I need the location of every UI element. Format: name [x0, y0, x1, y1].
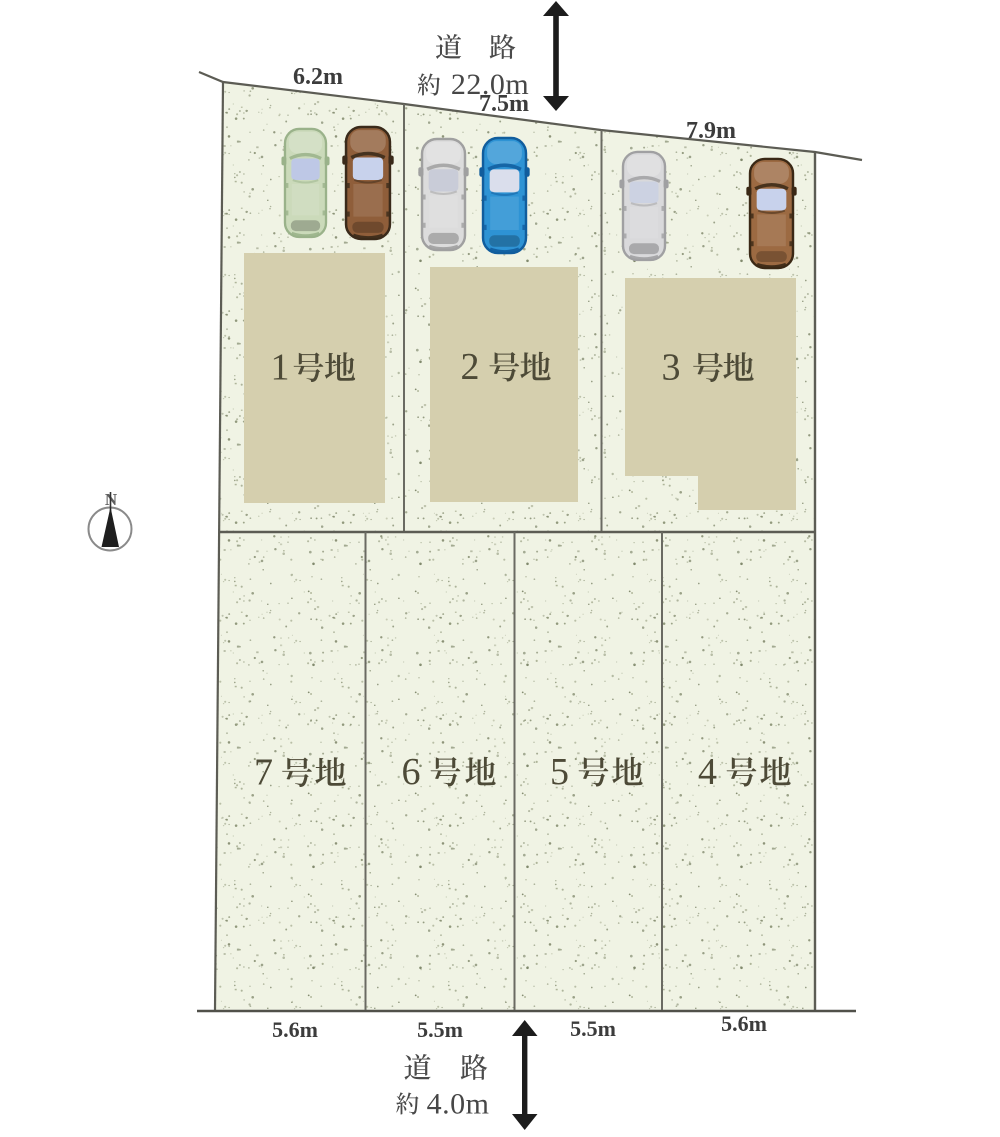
- svg-text:5.5m: 5.5m: [417, 1017, 463, 1042]
- svg-text:7: 7: [254, 752, 273, 794]
- svg-text:6: 6: [402, 751, 421, 793]
- svg-text:1: 1: [271, 347, 290, 389]
- svg-text:5.6m: 5.6m: [272, 1017, 318, 1042]
- svg-text:7.5m: 7.5m: [479, 91, 529, 117]
- svg-text:5.5m: 5.5m: [570, 1016, 616, 1041]
- svg-text:2: 2: [461, 346, 480, 388]
- svg-text:5.6m: 5.6m: [721, 1011, 767, 1036]
- svg-text:6.2m: 6.2m: [293, 64, 343, 90]
- svg-text:3: 3: [662, 347, 681, 389]
- svg-text:4: 4: [698, 751, 717, 793]
- svg-text:N: N: [105, 490, 118, 509]
- svg-text:4.0m: 4.0m: [427, 1088, 490, 1121]
- svg-text:7.9m: 7.9m: [686, 118, 736, 144]
- svg-text:5: 5: [550, 751, 569, 793]
